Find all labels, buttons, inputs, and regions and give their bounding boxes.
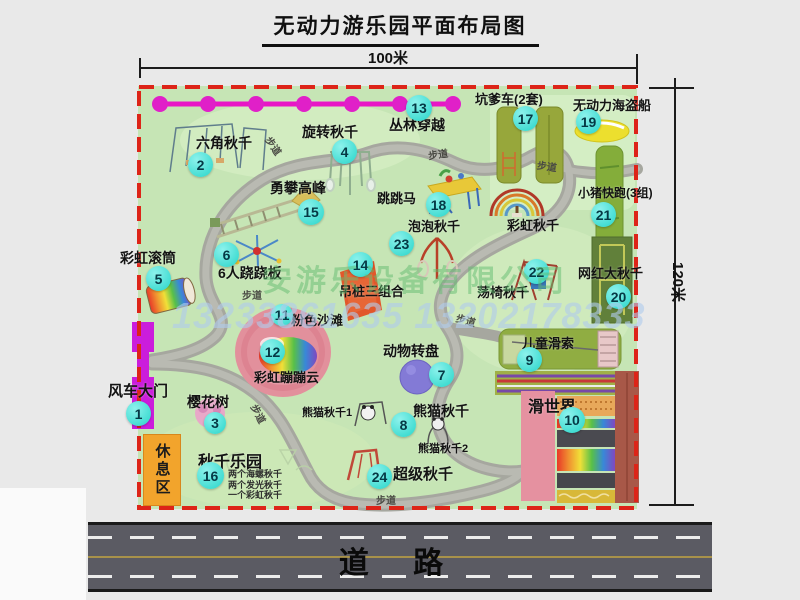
page-title-wrap: 无动力游乐园平面布局图 (0, 10, 800, 47)
label-panda-swing-1: 熊猫秋千1 (302, 404, 352, 420)
badge-13: 13 (406, 95, 432, 121)
badge-10: 10 (559, 407, 585, 433)
badge-9: 9 (517, 347, 542, 372)
label-panda-swing-2: 熊猫秋千2 (418, 440, 468, 456)
badge-15: 15 (298, 199, 324, 225)
dimension-top-label: 100米 (358, 47, 418, 68)
badge-14: 14 (348, 252, 373, 277)
walkway-label: 步道 (427, 145, 449, 163)
badge-12: 12 (260, 339, 285, 364)
badge-19: 19 (576, 109, 601, 134)
dimension-right-label: 120米 (668, 262, 689, 302)
badge-5: 5 (146, 266, 171, 291)
badge-3: 3 (204, 412, 226, 434)
rest-area-label: 休息区 (152, 443, 173, 497)
swing-paradise-sublist: 两个海螺秋千 两个发光秋千 一个彩虹秋千 (228, 469, 282, 501)
label-bounce-cloud: 彩虹蹦蹦云 (254, 367, 319, 386)
label-hanging-piles: 吊桩三组合 (339, 281, 404, 300)
badge-18: 18 (426, 192, 451, 217)
label-bubble-swing: 泡泡秋千 (408, 216, 460, 235)
label-jumping-horse: 跳跳马 (377, 188, 416, 207)
label-big-net-swing: 网红大秋千 (578, 263, 643, 282)
badge-20: 20 (606, 284, 631, 309)
road: 道 路 (88, 522, 712, 592)
label-rotating-swing: 旋转秋千 (302, 122, 358, 142)
label-piggy-run: 小猪快跑(3组) (578, 184, 653, 201)
badge-22: 22 (524, 259, 549, 284)
label-climbing-peak: 勇攀高峰 (270, 178, 326, 198)
label-animal-turntable: 动物转盘 (383, 341, 439, 361)
walkway-label: 步道 (242, 287, 262, 302)
badge-2: 2 (188, 152, 213, 177)
label-cherry-tree: 樱花树 (187, 392, 229, 412)
label-panda-swing: 熊猫秋千 (413, 401, 469, 421)
page-title: 无动力游乐园平面布局图 (262, 10, 539, 47)
road-label: 道 路 (88, 538, 712, 582)
label-rainbow-swing: 彩虹秋千 (507, 215, 559, 234)
swing-paradise-item: 两个发光秋千 (228, 480, 282, 491)
walkway-label: 步道 (376, 492, 396, 507)
label-swing-chair: 荡椅秋千 (477, 282, 529, 301)
badge-24: 24 (367, 464, 392, 489)
label-pink-beach: 粉色沙滩 (291, 310, 343, 329)
rest-area: 休息区 (143, 434, 181, 506)
badge-23: 23 (389, 231, 414, 256)
badge-6: 6 (214, 242, 239, 267)
page-margin (0, 488, 86, 600)
walkway-label: 步道 (536, 157, 558, 175)
badge-21: 21 (591, 202, 616, 227)
label-super-swing: 超级秋千 (393, 463, 453, 484)
swing-paradise-item: 一个彩虹秋千 (228, 490, 282, 501)
badge-8: 8 (391, 412, 416, 437)
badge-11: 11 (271, 304, 293, 326)
label-hexagon-swing: 六角秋千 (196, 133, 252, 153)
swing-paradise-item: 两个海螺秋千 (228, 469, 282, 480)
badge-7: 7 (429, 362, 454, 387)
label-pit-cart: 坑爹车(2套) (475, 89, 543, 108)
badge-16: 16 (197, 462, 224, 489)
badge-1: 1 (126, 401, 151, 426)
park-layout-map: 无动力游乐园平面布局图 100米 120米 1 2 3 4 5 6 7 8 9 … (0, 0, 800, 600)
badge-17: 17 (513, 106, 538, 131)
badge-4: 4 (332, 139, 357, 164)
label-rainbow-roller: 彩虹滚筒 (120, 248, 176, 268)
label-windmill-gate: 风车大门 (108, 380, 168, 401)
